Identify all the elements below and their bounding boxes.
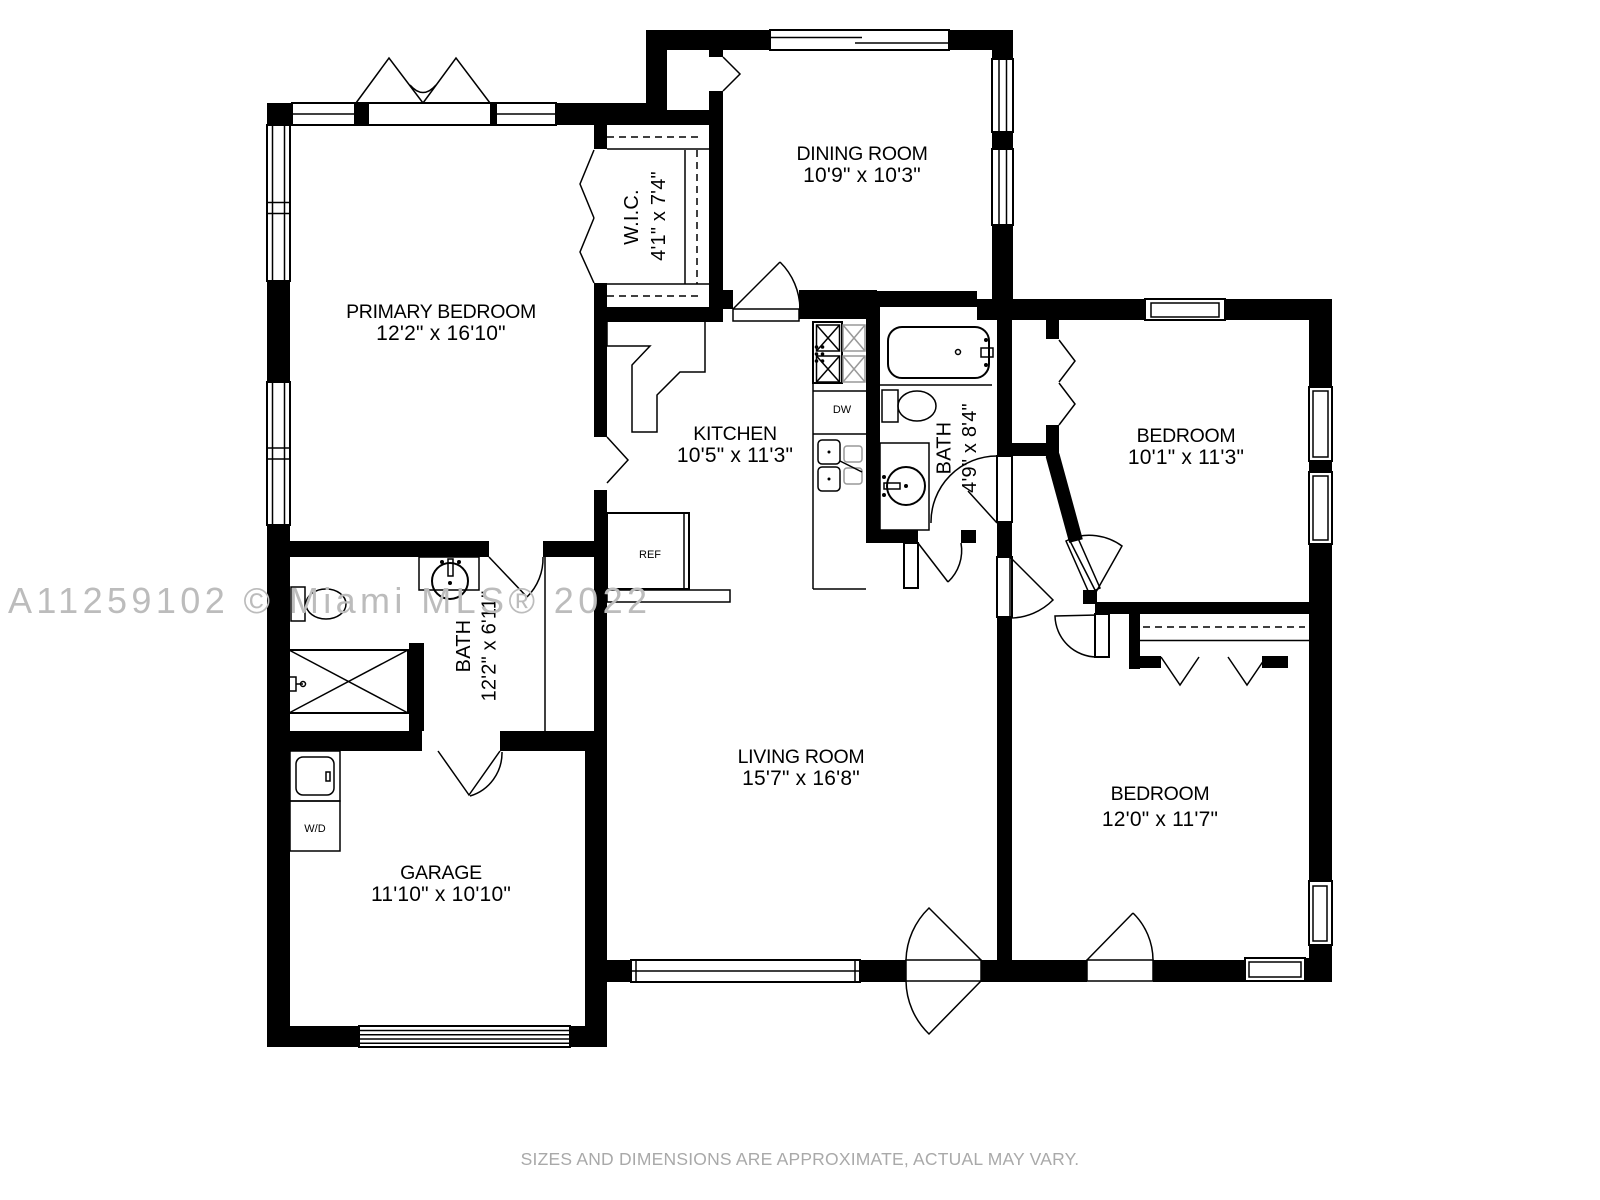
svg-text:4'1" x 7'4": 4'1" x 7'4" <box>648 171 670 261</box>
svg-text:KITCHEN: KITCHEN <box>693 423 777 445</box>
svg-text:12'2" x 16'10": 12'2" x 16'10" <box>376 322 506 345</box>
svg-text:BATH: BATH <box>453 620 475 673</box>
svg-text:DINING ROOM: DINING ROOM <box>796 143 927 165</box>
svg-text:SIZES AND DIMENSIONS ARE APPRO: SIZES AND DIMENSIONS ARE APPROXIMATE, AC… <box>521 1149 1080 1169</box>
svg-text:REF: REF <box>639 549 661 561</box>
svg-text:BEDROOM: BEDROOM <box>1111 783 1210 805</box>
svg-text:BEDROOM: BEDROOM <box>1137 425 1236 447</box>
svg-text:10'9" x 10'3": 10'9" x 10'3" <box>803 164 921 187</box>
svg-text:10'5" x 11'3": 10'5" x 11'3" <box>677 444 793 467</box>
svg-text:A11259102 © Miami MLS® 2022: A11259102 © Miami MLS® 2022 <box>8 580 651 621</box>
svg-text:W.I.C.: W.I.C. <box>621 189 643 245</box>
svg-text:LIVING ROOM: LIVING ROOM <box>738 746 865 768</box>
svg-text:DW: DW <box>833 404 852 416</box>
svg-text:BATH: BATH <box>934 422 956 475</box>
svg-text:W/D: W/D <box>304 823 325 835</box>
svg-text:4'9" x 8'4": 4'9" x 8'4" <box>959 403 981 493</box>
svg-text:15'7" x 16'8": 15'7" x 16'8" <box>742 767 860 790</box>
svg-text:11'10" x 10'10": 11'10" x 10'10" <box>371 883 511 906</box>
svg-text:PRIMARY BEDROOM: PRIMARY BEDROOM <box>346 301 536 323</box>
svg-text:10'1" x 11'3": 10'1" x 11'3" <box>1128 446 1244 469</box>
svg-text:GARAGE: GARAGE <box>400 862 482 884</box>
svg-text:12'0" x 11'7": 12'0" x 11'7" <box>1102 808 1218 831</box>
